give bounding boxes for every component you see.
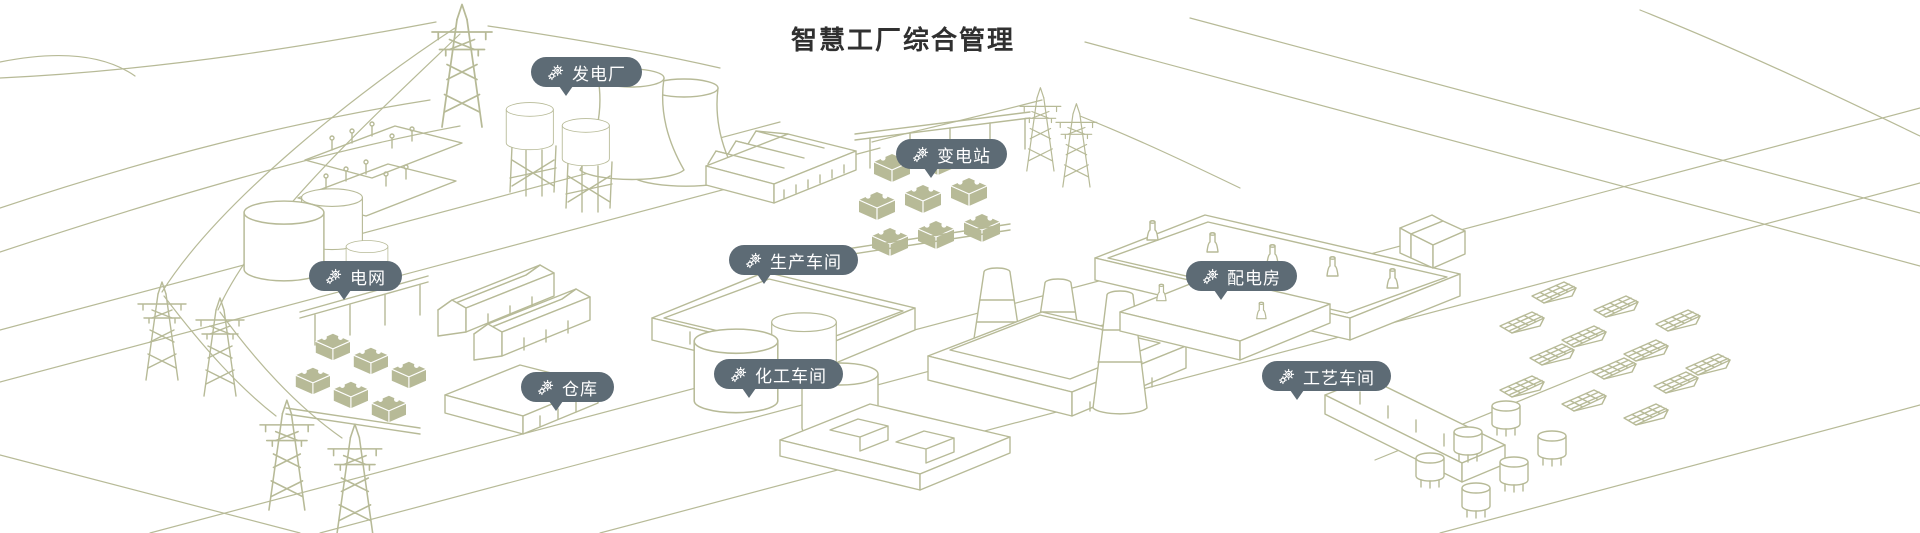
- warehouses: [438, 265, 598, 434]
- marker-warehouse[interactable]: 仓库: [521, 372, 614, 402]
- gears-icon: [730, 366, 747, 383]
- small-gable-house: [1400, 215, 1465, 268]
- transmission-tower: [138, 282, 186, 380]
- marker-label: 化工车间: [755, 362, 827, 387]
- factory-illustration: [0, 0, 1920, 533]
- process-workshop-area: [1325, 378, 1566, 518]
- gears-icon: [537, 379, 554, 396]
- marker-substation[interactable]: 变电站: [896, 139, 1007, 169]
- marker-chemical-workshop[interactable]: 化工车间: [714, 359, 843, 389]
- sawtooth-factory: [706, 131, 856, 203]
- gears-icon: [1202, 268, 1219, 285]
- marker-label: 配电房: [1227, 264, 1281, 289]
- substation-yard: [840, 112, 1030, 256]
- power-plant-buildings: [506, 69, 738, 212]
- smart-factory-dashboard: 智慧工厂综合管理 发电厂: [0, 0, 1920, 533]
- marker-label: 发电厂: [572, 60, 626, 85]
- elevated-tank: [506, 103, 556, 196]
- gears-icon: [1278, 368, 1295, 385]
- transmission-tower: [1056, 104, 1097, 187]
- solar-panel-array: [1500, 282, 1730, 425]
- marker-label: 电网: [350, 264, 386, 289]
- page-title: 智慧工厂综合管理: [791, 20, 1015, 57]
- gears-icon: [547, 64, 564, 81]
- marker-label: 工艺车间: [1303, 364, 1375, 389]
- marker-power-plant[interactable]: 发电厂: [531, 57, 642, 87]
- marker-label: 仓库: [562, 375, 598, 400]
- gears-icon: [912, 146, 929, 163]
- marker-label: 生产车间: [770, 248, 842, 273]
- gears-icon: [745, 252, 762, 269]
- gears-icon: [325, 268, 342, 285]
- marker-distribution-room[interactable]: 配电房: [1186, 261, 1297, 291]
- marker-power-grid[interactable]: 电网: [309, 261, 402, 291]
- transmission-tower: [432, 5, 492, 128]
- marker-process-workshop[interactable]: 工艺车间: [1262, 361, 1391, 391]
- marker-label: 变电站: [937, 142, 991, 167]
- marker-production-workshop[interactable]: 生产车间: [729, 245, 858, 275]
